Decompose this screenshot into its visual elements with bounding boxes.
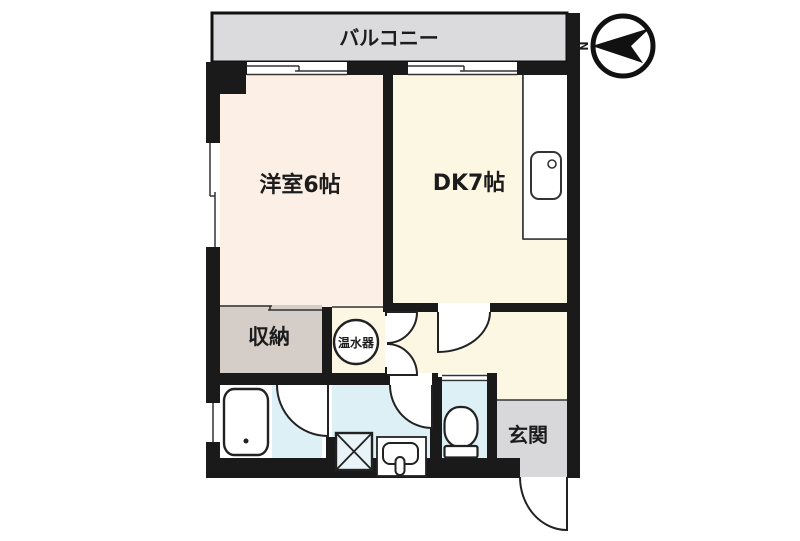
kitchen-sink-icon (531, 152, 561, 199)
hallway-floor-2 (493, 373, 567, 403)
bathtub-icon (224, 389, 268, 455)
wall-room-divider (383, 62, 393, 312)
wall-toilet-right (487, 373, 497, 458)
wall-segment (206, 373, 390, 385)
window-west-room-top (247, 62, 347, 75)
corner-pillar (213, 62, 246, 94)
wall-segment (490, 303, 567, 312)
wall-segment (393, 303, 438, 312)
entrance-label: 玄関 (508, 423, 548, 447)
compass-north-arrow-icon (592, 28, 650, 63)
kitchen-faucet-icon (548, 160, 556, 168)
doorway-dk (438, 303, 490, 312)
storage-label: 収納 (248, 325, 290, 349)
toilet-bowl-icon (445, 407, 478, 447)
floor-plan: バルコニー 洋室6帖 DK7帖 収納 温水器 玄関 N (0, 0, 800, 541)
floor-plan-svg: バルコニー 洋室6帖 DK7帖 収納 温水器 玄関 N (0, 0, 800, 541)
wall-segment-right (567, 13, 580, 478)
compass-north-label: N (578, 41, 591, 50)
basin-stand-icon (396, 457, 405, 475)
balcony-label: バルコニー (339, 26, 439, 50)
wall-segment (326, 437, 336, 458)
toilet-tank-icon (445, 446, 478, 458)
western-room-label: 洋室6帖 (259, 172, 340, 198)
compass: N (578, 16, 653, 76)
wall-segment (347, 62, 408, 75)
dk-label: DK7帖 (433, 171, 506, 196)
bathtub-drain-icon (244, 439, 249, 444)
water-heater-label: 温水器 (338, 335, 375, 350)
window-west-room-side (206, 143, 220, 247)
window-dk-top (408, 62, 517, 75)
